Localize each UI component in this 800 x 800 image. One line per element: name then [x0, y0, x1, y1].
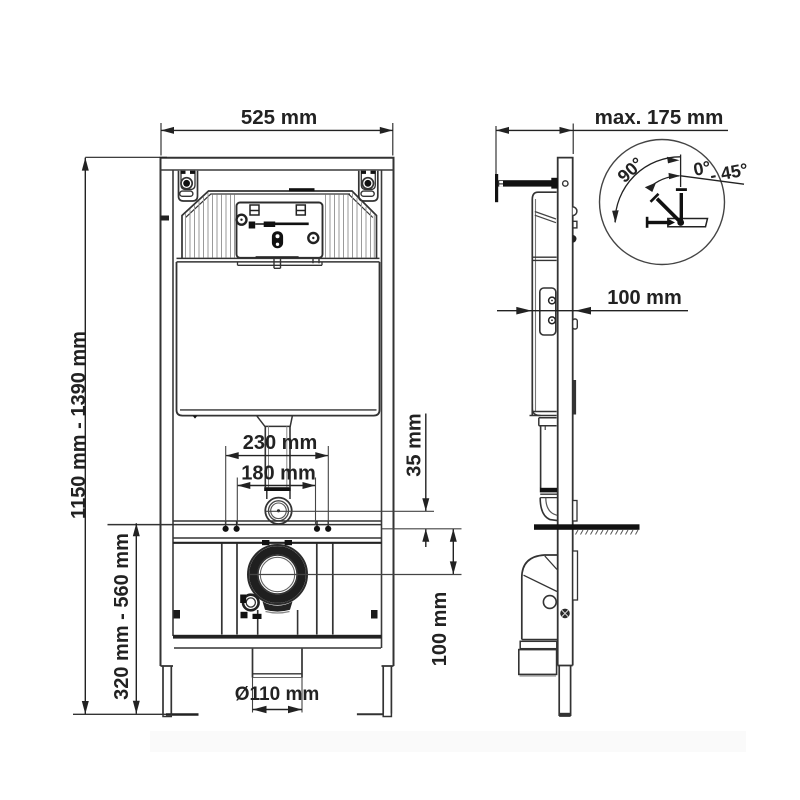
svg-text:35 mm: 35 mm [404, 413, 426, 476]
svg-text:230 mm: 230 mm [243, 432, 318, 454]
svg-text:max. 175 mm: max. 175 mm [595, 106, 724, 129]
svg-text:100 mm: 100 mm [429, 592, 451, 667]
svg-text:525 mm: 525 mm [241, 106, 317, 129]
svg-text:Ø110 mm: Ø110 mm [235, 684, 320, 705]
svg-text:180 mm: 180 mm [241, 463, 316, 485]
svg-text:1150 mm - 1390 mm: 1150 mm - 1390 mm [68, 331, 90, 519]
svg-text:100 mm: 100 mm [607, 287, 682, 309]
svg-text:320 mm - 560 mm: 320 mm - 560 mm [111, 533, 133, 700]
